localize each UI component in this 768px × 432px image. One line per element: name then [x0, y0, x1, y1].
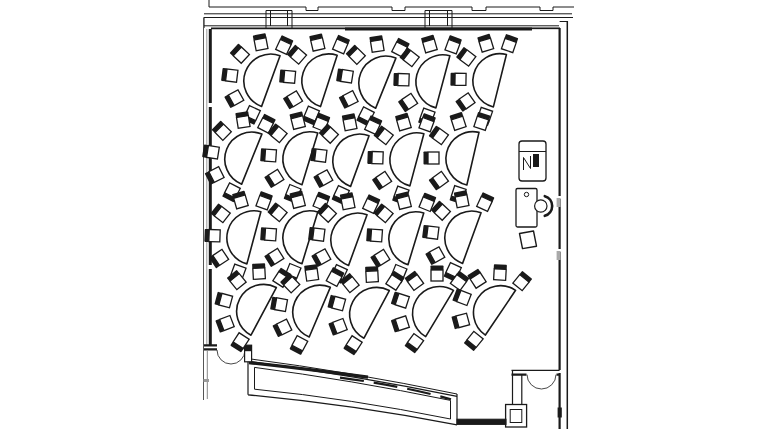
chair — [404, 271, 424, 291]
chair — [340, 192, 356, 210]
east-wall-tick-dark — [558, 408, 562, 418]
chair — [395, 113, 412, 131]
chair — [270, 297, 288, 312]
chair-seat — [341, 70, 354, 84]
presenter-area-group — [516, 141, 552, 249]
chair — [253, 33, 269, 51]
door-southwest-leaf-east — [231, 350, 245, 364]
chair — [332, 35, 350, 54]
chair-seat — [254, 38, 268, 51]
chair — [279, 69, 296, 83]
chair-seat — [315, 149, 327, 162]
chair — [209, 249, 229, 268]
chair — [429, 171, 449, 191]
chair — [202, 144, 219, 159]
south-band-connector — [457, 419, 506, 424]
chair — [252, 263, 266, 279]
chair-seat — [207, 146, 220, 160]
chair — [308, 227, 325, 242]
chair — [221, 68, 238, 83]
chair-seat — [313, 228, 325, 241]
chair-seat — [455, 73, 466, 85]
chair — [339, 90, 359, 109]
chair-back — [260, 148, 265, 161]
north-wall-top — [204, 18, 573, 29]
chair — [452, 288, 471, 306]
chair — [289, 111, 305, 129]
chair — [467, 268, 486, 288]
chair — [454, 190, 470, 208]
chair — [450, 73, 466, 86]
chair — [476, 192, 494, 212]
av-cart-equipment — [533, 154, 539, 167]
presenter-desk — [516, 189, 537, 228]
chair-seat — [265, 228, 277, 241]
southwest-wall — [204, 345, 217, 349]
chair-seat — [398, 74, 409, 86]
chair — [493, 264, 507, 280]
chair-seat — [341, 197, 355, 210]
chair — [255, 191, 273, 210]
chair — [372, 171, 392, 190]
chair-seat — [494, 269, 507, 281]
chair-seat — [431, 270, 443, 281]
chair — [212, 121, 232, 141]
chair-back — [393, 73, 398, 86]
chair — [230, 44, 250, 64]
av-cart — [519, 141, 546, 181]
chair — [260, 227, 276, 241]
chair-seat — [372, 152, 383, 164]
chair — [365, 266, 379, 282]
chair — [264, 248, 284, 267]
chair-seat — [226, 69, 238, 82]
chair — [512, 271, 532, 291]
chair — [398, 93, 418, 112]
presenter-chair-seat — [535, 200, 547, 212]
presenter-desk-top — [516, 189, 537, 228]
chair-seat — [237, 116, 251, 129]
chair — [404, 333, 424, 353]
chair-back — [431, 266, 444, 271]
chair-seat — [371, 229, 383, 242]
chair-back — [450, 73, 455, 86]
curved-south-wall-bottom — [248, 395, 457, 425]
chair-back — [494, 264, 507, 269]
chair — [260, 148, 276, 162]
chair — [501, 34, 518, 53]
chair-back — [252, 263, 265, 268]
chair — [204, 229, 220, 243]
chair — [313, 169, 333, 188]
chair — [235, 111, 250, 128]
chair — [456, 47, 476, 67]
chair — [311, 248, 331, 267]
chair-back — [260, 227, 265, 240]
southwest-door-jamb-cap — [245, 345, 252, 351]
chair — [224, 89, 244, 108]
floor-plan-page — [0, 0, 768, 432]
west-wall-lower-tick — [204, 379, 210, 382]
chair — [272, 319, 292, 337]
chair-seat — [366, 271, 379, 283]
chair — [343, 335, 362, 355]
chair-back — [423, 152, 428, 165]
chair — [336, 68, 353, 83]
chair-seat — [275, 298, 288, 312]
chair-back — [365, 266, 378, 271]
chair — [451, 313, 469, 330]
chair — [477, 34, 494, 53]
chair — [423, 152, 439, 165]
chair — [422, 225, 439, 240]
chair — [310, 148, 327, 163]
chair — [346, 45, 366, 65]
chair — [464, 331, 484, 351]
banquet-table — [383, 24, 463, 129]
chair — [327, 295, 345, 312]
chair — [421, 35, 438, 53]
southeast-fixture-outer — [506, 405, 527, 428]
chair — [215, 315, 234, 333]
chair — [393, 73, 409, 87]
chair — [366, 228, 382, 242]
chair-back — [366, 228, 371, 241]
exterior-outline-upper — [209, 0, 574, 11]
chair — [289, 335, 308, 355]
floor-plan-drawing — [0, 0, 768, 432]
chair-seat — [343, 118, 357, 131]
chair — [342, 113, 358, 131]
chair-seat — [428, 152, 439, 164]
curved-south-wall-inner-dark-dash — [340, 378, 451, 400]
chair-seat — [209, 230, 220, 242]
chair — [267, 202, 287, 222]
chair-seat — [253, 268, 266, 280]
half-round-table-top — [463, 275, 516, 335]
chair — [264, 169, 284, 188]
chair — [283, 90, 303, 109]
chair — [425, 246, 445, 265]
chair — [455, 92, 475, 112]
chair — [205, 166, 225, 185]
chair-seat — [305, 269, 318, 282]
door-southeast-leaf-east — [542, 375, 557, 389]
chair — [370, 249, 390, 268]
chair-seat — [371, 40, 385, 53]
chair — [369, 35, 384, 52]
chair-seat — [265, 149, 277, 162]
chair — [210, 203, 230, 223]
banquet-table — [311, 250, 406, 360]
chair — [309, 33, 325, 51]
chair-back — [367, 151, 372, 164]
chair — [444, 35, 462, 54]
chair-seat — [427, 226, 439, 239]
chair — [367, 151, 383, 165]
chair — [304, 264, 319, 281]
chair — [289, 190, 305, 208]
chair-seat — [284, 70, 296, 83]
door-southeast-leaf-west — [527, 375, 542, 389]
chair — [391, 315, 410, 332]
east-wall-tick-upper — [557, 198, 561, 207]
chair — [449, 112, 466, 131]
door-southwest-leaf-west — [217, 350, 231, 364]
chair-back — [204, 229, 209, 242]
chair — [395, 191, 411, 209]
chair — [328, 318, 347, 336]
chair — [214, 292, 232, 309]
east-wall-tick-lower — [557, 251, 561, 260]
chair — [431, 266, 444, 282]
chair — [391, 291, 410, 308]
stool — [520, 231, 537, 249]
tables-group — [188, 20, 533, 359]
banquet-table — [373, 248, 470, 358]
chair-seat — [455, 195, 469, 208]
